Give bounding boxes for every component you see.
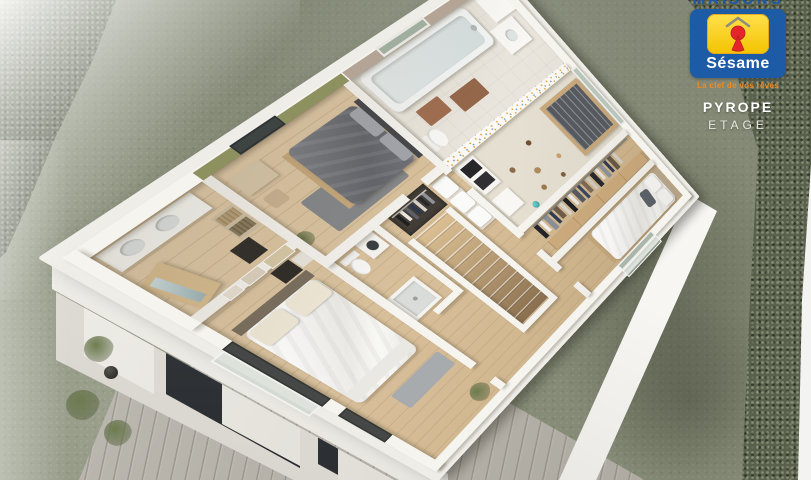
plan-name: PYROPE [675,99,801,115]
shrub-3 [104,420,132,446]
brand-top-clipped: MAISONS [675,0,801,9]
logo-block: MAISONS Sésame La clef de vos rêves PYRO… [675,0,801,132]
floor-label: ETAGE [675,118,801,132]
render-stage: MAISONS Sésame La clef de vos rêves PYRO… [0,0,811,480]
brand-name: Sésame [690,55,786,73]
brand-tagline: La clef de vos rêves [675,81,801,90]
shrub-2 [66,390,100,420]
toy-bin-2 [473,171,495,190]
keyhole-icon [707,14,769,54]
logo-card: Sésame [690,9,786,78]
shrub [84,336,114,362]
washbasin-bowl [503,27,521,43]
black-pot [104,366,118,379]
brand-top-text: MAISONS [675,0,801,9]
